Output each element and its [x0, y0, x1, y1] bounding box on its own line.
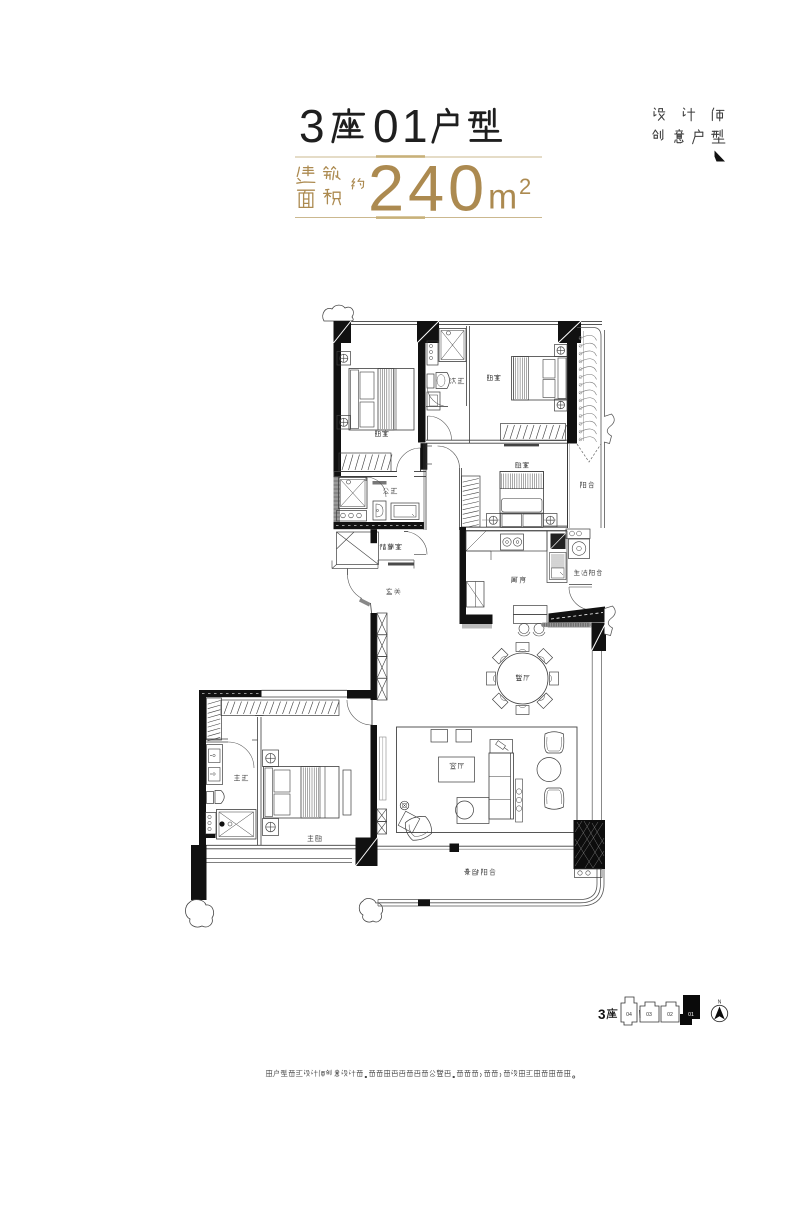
svg-text:2: 2	[368, 152, 404, 225]
svg-text:N: N	[718, 1000, 722, 1006]
svg-text:4: 4	[408, 152, 444, 225]
svg-text:1: 1	[402, 100, 428, 152]
svg-text:01: 01	[688, 1012, 694, 1018]
svg-text:03: 03	[646, 1012, 652, 1018]
svg-text:04: 04	[626, 1012, 632, 1018]
svg-text:0: 0	[448, 152, 484, 225]
svg-text:3: 3	[598, 1007, 606, 1022]
svg-text:2: 2	[519, 174, 531, 199]
svg-text:m: m	[488, 178, 517, 217]
svg-text:02: 02	[667, 1012, 673, 1018]
svg-text:3: 3	[299, 100, 325, 152]
svg-text:0: 0	[373, 100, 399, 152]
